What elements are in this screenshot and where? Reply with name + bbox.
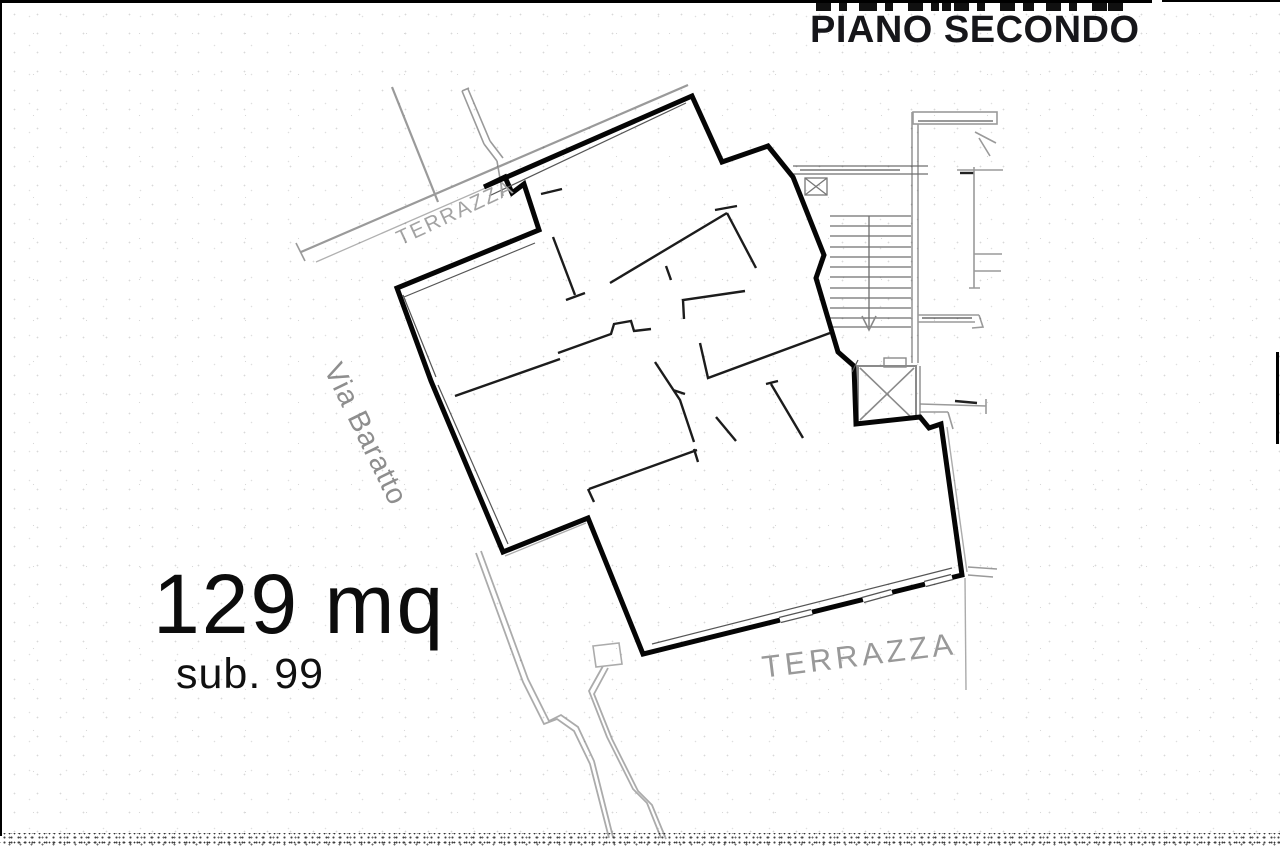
scan-border-top-right [1162,0,1280,2]
scan-noise-bottom-band [0,833,1280,846]
scan-border-left [0,0,2,836]
scan-border-top [0,0,1152,3]
floor-plan-page: PIANO SECONDO 129 mq sub. 99 Via Baratto… [0,0,1280,846]
area-label: 129 mq [153,556,445,653]
path-landing-square [593,643,622,667]
site-plan-svg [0,0,1280,846]
scan-border-right [1276,352,1279,444]
right-structures [912,112,1003,690]
stair-treads [830,216,911,327]
page-title: PIANO SECONDO [810,9,1140,52]
subaltern-label: sub. 99 [176,650,324,699]
